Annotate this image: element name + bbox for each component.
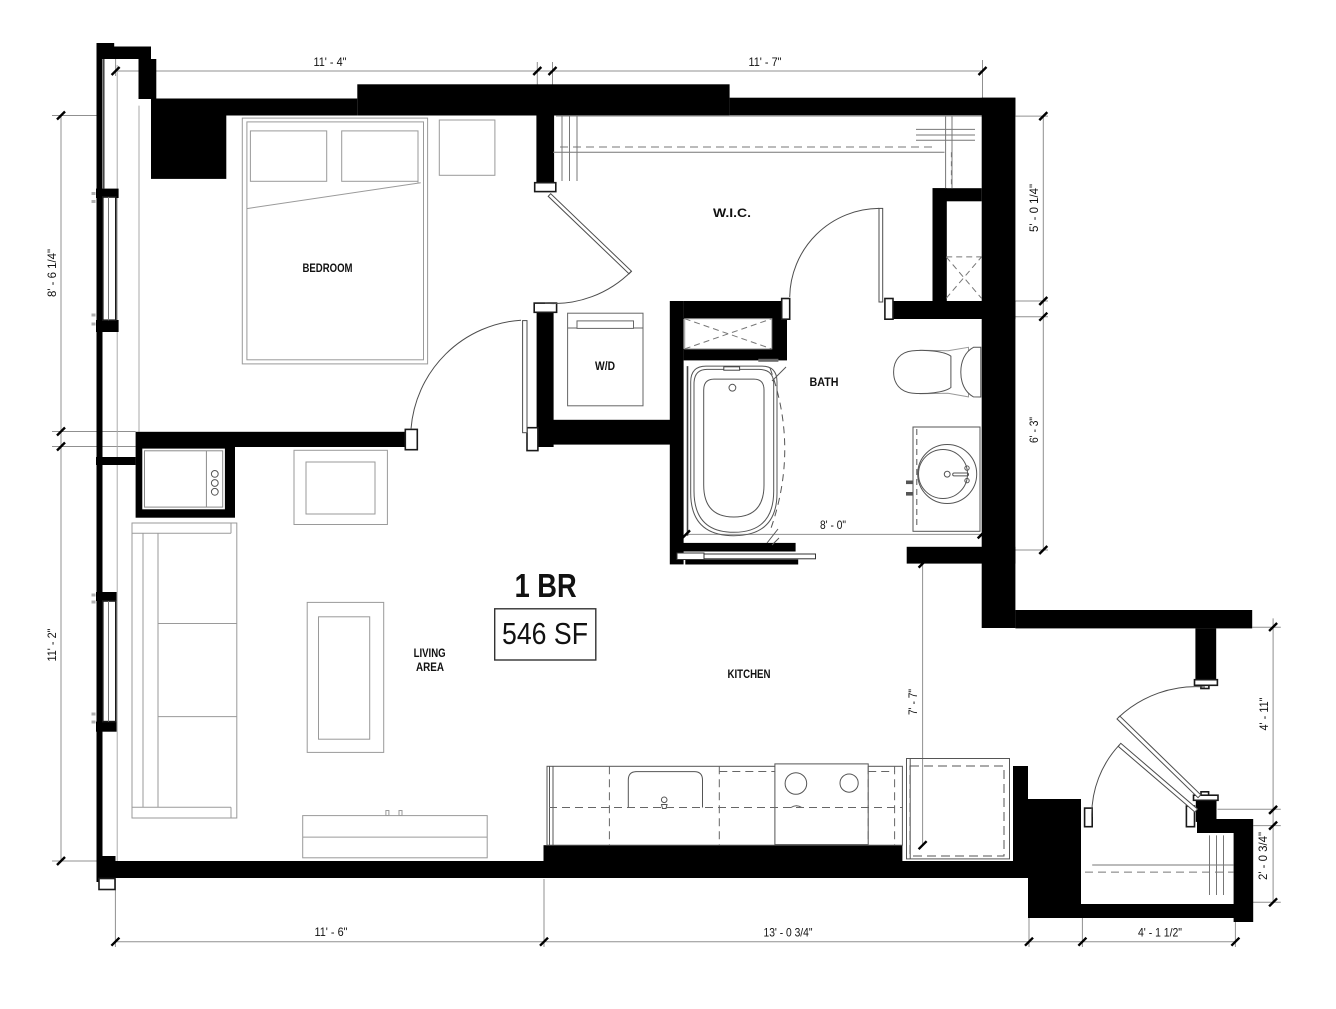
svg-text:KITCHEN: KITCHEN — [728, 669, 771, 681]
svg-text:7' - 7": 7' - 7" — [906, 689, 920, 715]
svg-text:W.I.C.: W.I.C. — [713, 208, 751, 220]
svg-text:4' - 11": 4' - 11" — [1257, 698, 1271, 731]
svg-text:BATH: BATH — [810, 377, 839, 389]
svg-text:W/D: W/D — [595, 361, 615, 373]
svg-text:546 SF: 546 SF — [502, 616, 588, 651]
svg-text:4' - 1 1/2": 4' - 1 1/2" — [1138, 926, 1182, 940]
svg-text:8' - 6 1/4": 8' - 6 1/4" — [45, 249, 59, 297]
svg-text:2' - 0 3/4": 2' - 0 3/4" — [1256, 832, 1270, 880]
svg-text:13' - 0 3/4": 13' - 0 3/4" — [764, 926, 813, 940]
svg-text:AREA: AREA — [416, 660, 444, 674]
svg-text:8' - 0": 8' - 0" — [820, 518, 846, 532]
svg-text:11' - 7": 11' - 7" — [749, 55, 782, 69]
svg-text:5' - 0 1/4": 5' - 0 1/4" — [1027, 184, 1041, 232]
svg-text:11' - 4": 11' - 4" — [314, 55, 347, 69]
svg-text:BEDROOM: BEDROOM — [303, 263, 353, 275]
svg-text:6' - 3": 6' - 3" — [1027, 417, 1041, 443]
svg-text:11' - 2": 11' - 2" — [45, 629, 59, 662]
svg-text:LIVING: LIVING — [414, 646, 446, 660]
svg-text:11' - 6": 11' - 6" — [315, 925, 348, 939]
svg-text:1 BR: 1 BR — [515, 567, 577, 604]
